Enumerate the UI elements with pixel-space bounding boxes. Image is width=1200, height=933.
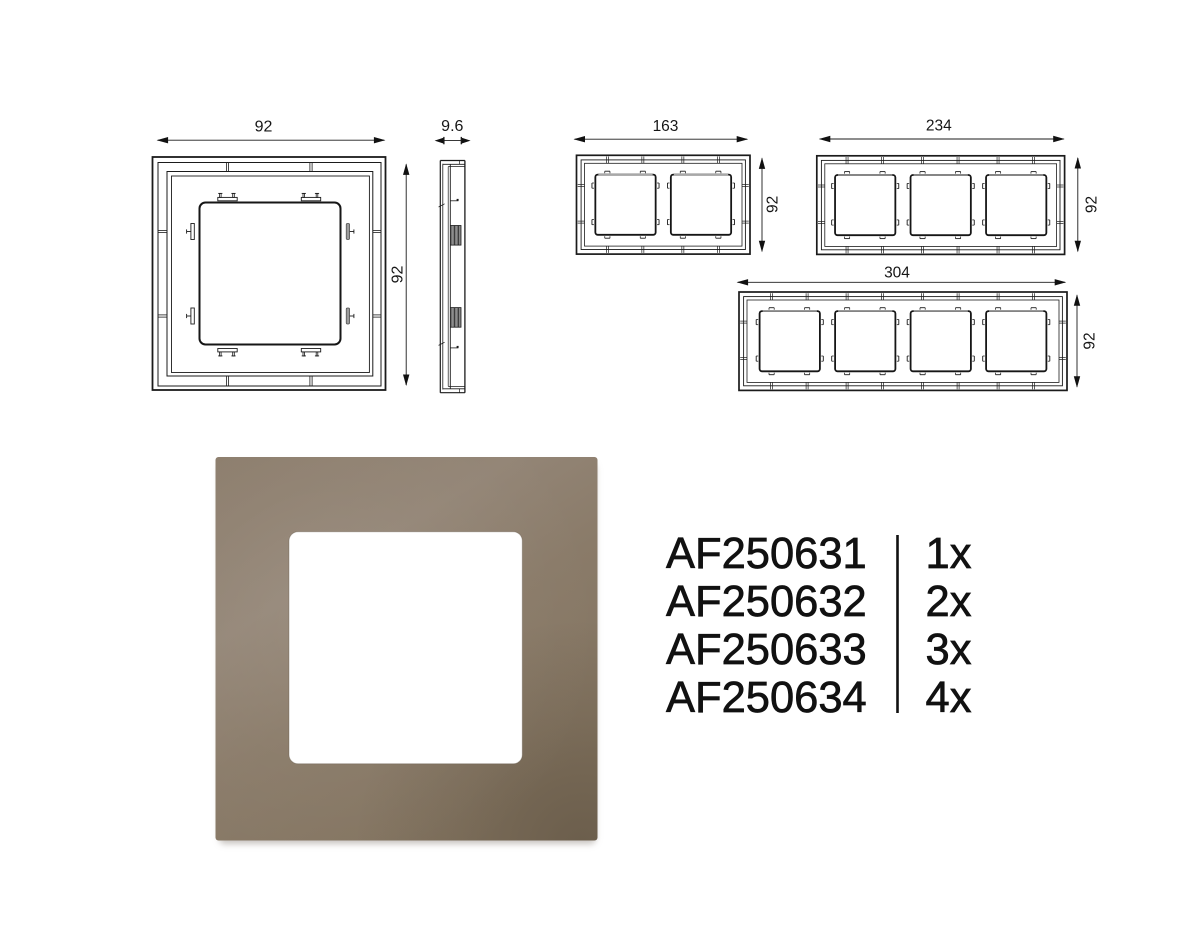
svg-text:1x: 1x bbox=[926, 530, 972, 578]
svg-text:AF250632: AF250632 bbox=[666, 578, 867, 626]
svg-text:92: 92 bbox=[390, 266, 407, 284]
svg-text:2x: 2x bbox=[926, 578, 972, 626]
svg-text:AF250631: AF250631 bbox=[666, 530, 867, 578]
svg-text:234: 234 bbox=[926, 118, 952, 135]
svg-text:9.6: 9.6 bbox=[441, 118, 463, 135]
svg-text:92: 92 bbox=[1082, 332, 1099, 349]
svg-text:92: 92 bbox=[765, 196, 782, 213]
svg-text:304: 304 bbox=[884, 264, 910, 281]
svg-text:AF250634: AF250634 bbox=[666, 674, 867, 722]
svg-text:163: 163 bbox=[653, 118, 679, 135]
svg-text:92: 92 bbox=[255, 119, 273, 136]
svg-text:92: 92 bbox=[1084, 196, 1101, 213]
svg-text:AF250633: AF250633 bbox=[666, 626, 867, 674]
svg-text:3x: 3x bbox=[926, 626, 972, 674]
svg-text:4x: 4x bbox=[926, 674, 972, 722]
